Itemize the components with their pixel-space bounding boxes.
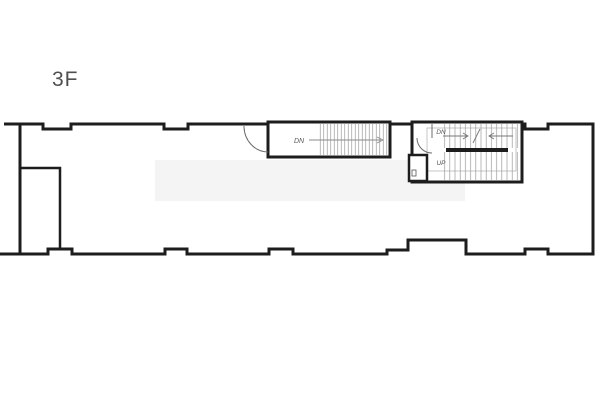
shaft-box: [409, 155, 427, 181]
stair-right-dn-label: DN: [436, 129, 446, 136]
stair-right: DN UP: [409, 122, 522, 182]
stair-right-lower-treads: [441, 152, 519, 180]
stair-middle-door-swing-arc: [244, 126, 268, 152]
stair-right-up-label: UP: [436, 160, 446, 167]
left-room-partition: [20, 168, 60, 250]
floor-plan-canvas: DN DN UP: [0, 0, 600, 418]
stair-middle-dn-label: DN: [294, 138, 305, 145]
stair-middle: DN: [244, 122, 390, 157]
stair-right-landing-divider: [446, 148, 508, 152]
stair-middle-treads: [318, 124, 388, 155]
